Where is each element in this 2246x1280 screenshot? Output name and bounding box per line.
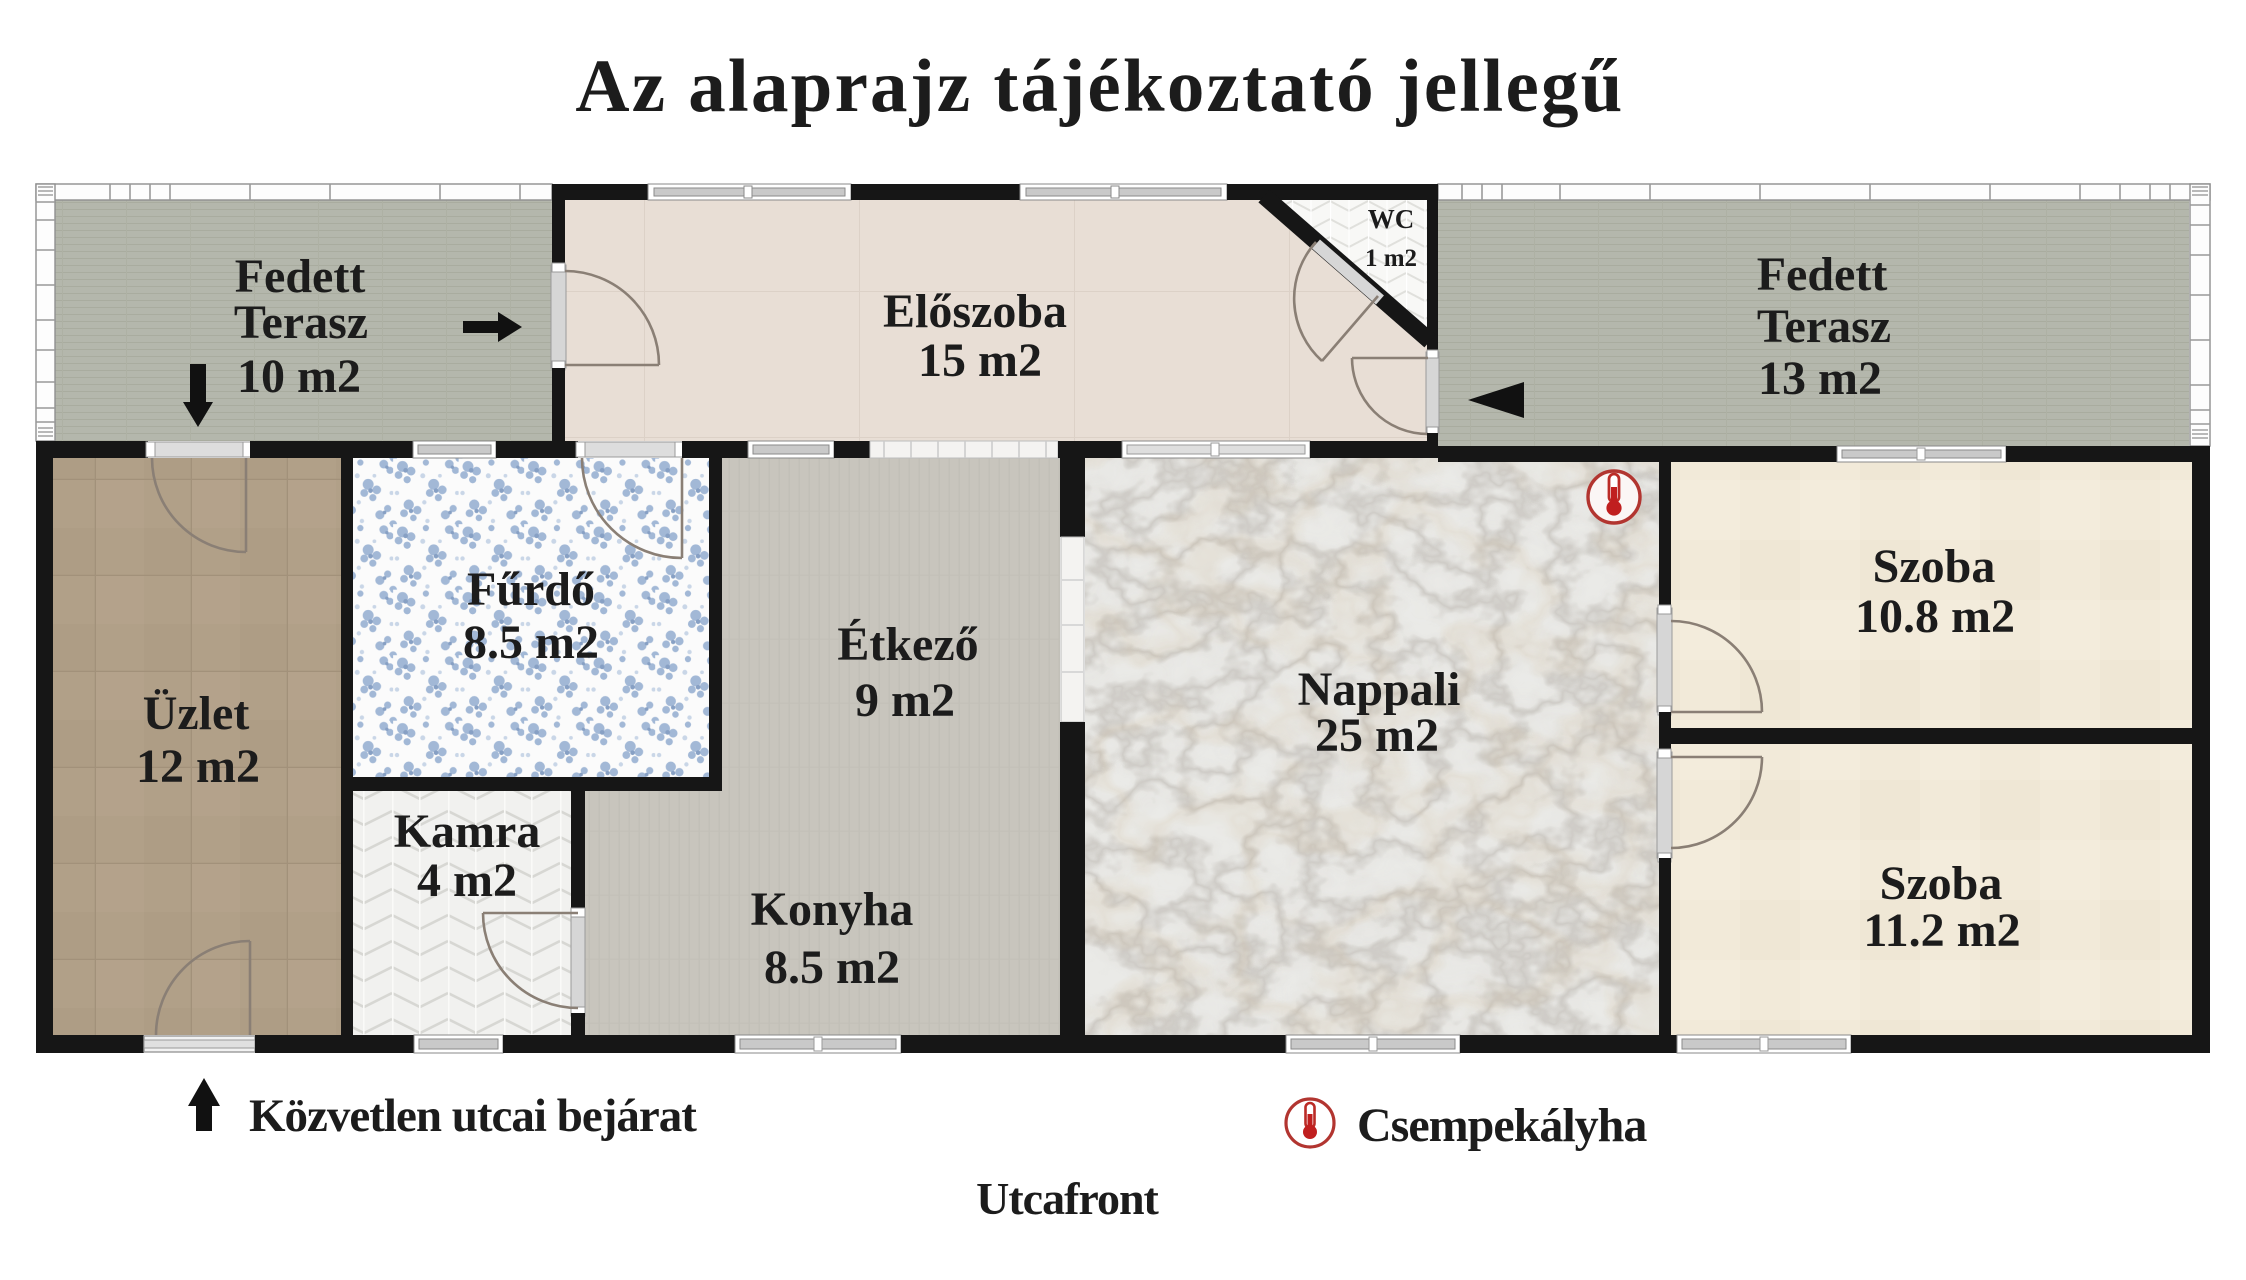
svg-text:Kamra: Kamra bbox=[394, 805, 541, 858]
svg-text:Közvetlen utcai bejárat: Közvetlen utcai bejárat bbox=[249, 1090, 697, 1142]
svg-text:10 m2: 10 m2 bbox=[237, 350, 361, 403]
svg-text:Szoba: Szoba bbox=[1873, 540, 1996, 593]
svg-text:Előszoba: Előszoba bbox=[883, 285, 1067, 338]
svg-text:Az alaprajz tájékoztató jelleg: Az alaprajz tájékoztató jellegű bbox=[575, 45, 1624, 128]
svg-text:Csempekályha: Csempekályha bbox=[1357, 1099, 1647, 1152]
svg-text:9 m2: 9 m2 bbox=[855, 674, 955, 727]
svg-text:10.8 m2: 10.8 m2 bbox=[1855, 590, 2015, 643]
svg-text:WC: WC bbox=[1368, 204, 1415, 234]
svg-text:Üzlet: Üzlet bbox=[143, 687, 250, 740]
svg-text:1 m2: 1 m2 bbox=[1365, 245, 1417, 272]
svg-text:Konyha: Konyha bbox=[751, 883, 914, 936]
svg-text:Fedett: Fedett bbox=[1757, 248, 1888, 301]
svg-text:Szoba: Szoba bbox=[1880, 857, 2003, 910]
svg-text:Fűrdő: Fűrdő bbox=[467, 563, 595, 616]
svg-text:15 m2: 15 m2 bbox=[918, 334, 1042, 387]
svg-text:12 m2: 12 m2 bbox=[136, 740, 260, 793]
svg-text:11.2 m2: 11.2 m2 bbox=[1863, 904, 2020, 957]
svg-text:Terasz: Terasz bbox=[234, 296, 368, 349]
svg-text:Étkező: Étkező bbox=[837, 618, 978, 671]
svg-text:8.5 m2: 8.5 m2 bbox=[764, 941, 900, 994]
svg-text:Terasz: Terasz bbox=[1757, 300, 1891, 353]
svg-text:8.5 m2: 8.5 m2 bbox=[463, 616, 599, 669]
svg-text:13 m2: 13 m2 bbox=[1758, 352, 1882, 405]
svg-text:25 m2: 25 m2 bbox=[1315, 709, 1439, 762]
svg-text:4 m2: 4 m2 bbox=[417, 854, 517, 907]
svg-text:Utcafront: Utcafront bbox=[976, 1173, 1159, 1224]
